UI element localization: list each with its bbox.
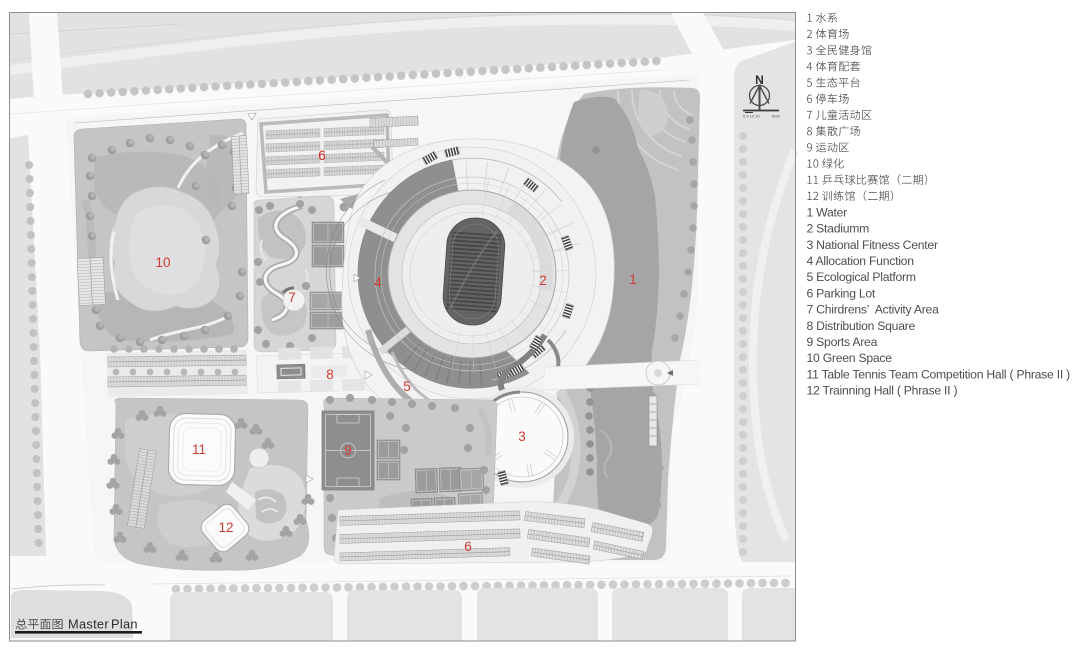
svg-text:7 Chirdrens’ Activity Area: 7 Chirdrens’ Activity Area bbox=[807, 303, 940, 317]
svg-text:Plan: Plan bbox=[111, 617, 138, 632]
svg-text:Master: Master bbox=[68, 617, 109, 632]
svg-text:12 Trainning Hall ( Phrase II: 12 Trainning Hall ( Phrase II ) bbox=[807, 384, 958, 398]
svg-text:1: 1 bbox=[629, 272, 637, 287]
svg-text:4: 4 bbox=[374, 275, 382, 290]
svg-text:7: 7 bbox=[288, 290, 296, 305]
svg-text:11: 11 bbox=[192, 442, 206, 457]
svg-text:0 5 10 20: 0 5 10 20 bbox=[743, 114, 760, 119]
svg-text:10: 10 bbox=[155, 255, 170, 270]
svg-text:6: 6 bbox=[318, 148, 326, 163]
svg-text:8 Distribution Square: 8 Distribution Square bbox=[807, 319, 916, 333]
svg-text:4 Allocation Function: 4 Allocation Function bbox=[807, 254, 914, 268]
svg-text:3 National Fitness Center: 3 National Fitness Center bbox=[807, 238, 938, 252]
svg-text:10 Green Space: 10 Green Space bbox=[807, 351, 893, 365]
svg-text:1 Water: 1 Water bbox=[807, 205, 848, 219]
svg-text:2: 2 bbox=[539, 273, 547, 288]
svg-text:9 Sports Area: 9 Sports Area bbox=[807, 335, 878, 349]
svg-text:6 Parking Lot: 6 Parking Lot bbox=[807, 286, 876, 300]
svg-text:6: 6 bbox=[464, 539, 472, 554]
svg-text:5 Ecological Platform: 5 Ecological Platform bbox=[807, 270, 916, 284]
svg-text:80m: 80m bbox=[772, 114, 780, 119]
svg-text:12: 12 bbox=[218, 520, 233, 535]
svg-text:5: 5 bbox=[403, 379, 411, 394]
svg-text:3: 3 bbox=[518, 429, 526, 444]
svg-text:9: 9 bbox=[344, 443, 352, 458]
svg-text:11 Table Tennis Team Competiti: 11 Table Tennis Team Competition Hall ( … bbox=[807, 367, 1071, 381]
svg-text:8: 8 bbox=[326, 367, 334, 382]
svg-text:2 Stadiumm: 2 Stadiumm bbox=[807, 222, 870, 236]
